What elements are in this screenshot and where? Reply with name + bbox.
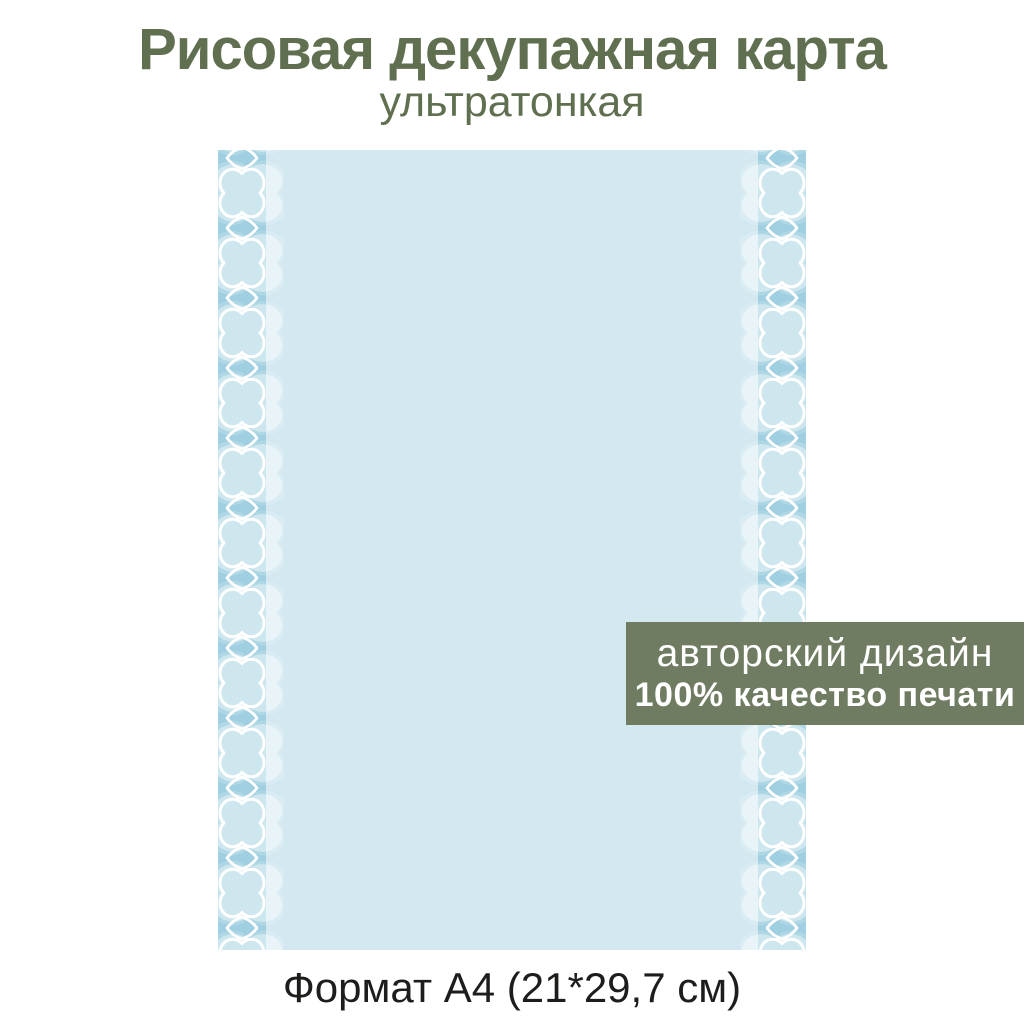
decorative-border-right	[740, 150, 806, 950]
page-subtitle: ультратонкая	[0, 78, 1024, 127]
quality-banner: авторский дизайн 100% качество печати	[626, 622, 1024, 725]
decoupage-card-preview	[218, 150, 806, 950]
format-label: Формат А4 (21*29,7 см)	[0, 964, 1024, 1012]
product-image: Рисовая декупажная карта ультратонкая ав…	[0, 0, 1024, 1024]
banner-print-quality-label: 100% качество печати	[635, 676, 1016, 715]
page-title: Рисовая декупажная карта	[0, 16, 1024, 83]
banner-author-design-label: авторский дизайн	[657, 632, 994, 677]
decorative-border-left	[218, 150, 284, 950]
